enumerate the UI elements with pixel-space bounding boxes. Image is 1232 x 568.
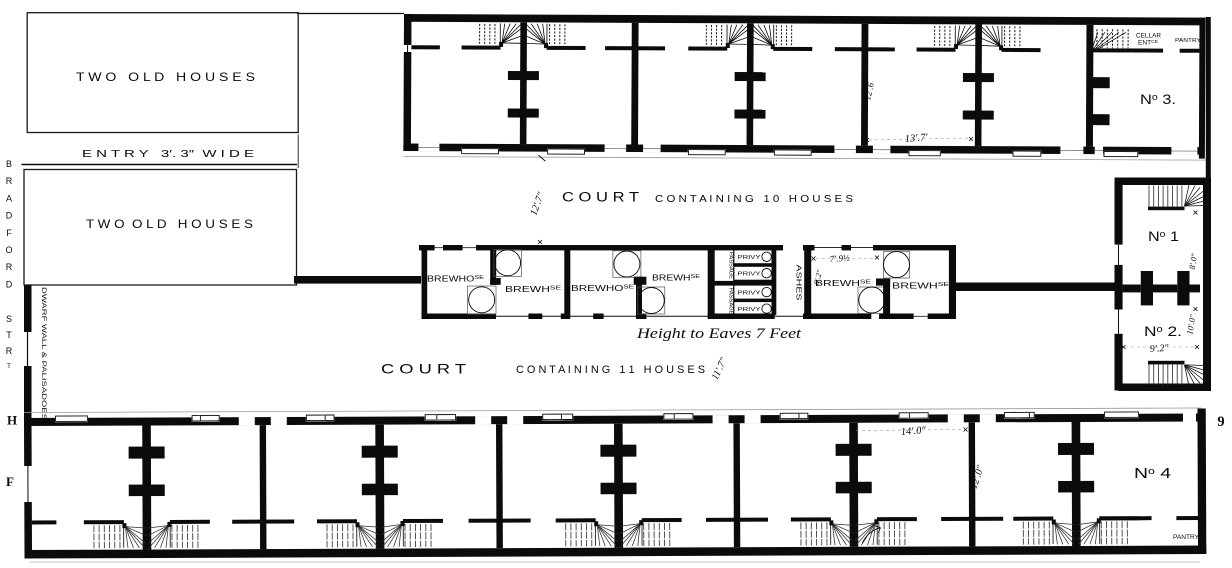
svg-text:PRIVY: PRIVY [738,291,761,297]
svg-text:PANTRY: PANTRY [1175,38,1201,44]
svg-text:T: T [7,363,11,370]
svg-text:13′.7′: 13′.7′ [904,132,928,145]
svg-text:9′.2″: 9′.2″ [1149,343,1169,355]
svg-text:R: R [6,346,13,356]
svg-text:D: D [6,279,13,289]
svg-text:PRIVY: PRIVY [738,272,761,278]
svg-text:S: S [6,314,12,324]
svg-text:No 3.: No 3. [1140,91,1176,107]
svg-text:R: R [6,176,13,186]
svg-text:E N T R Y 3′. 3″ W I D E: E N T R Y 3′. 3″ W I D E [82,148,254,160]
svg-text:ASHES: ASHES [795,265,804,301]
svg-text:T W O O L D H O U S E S: T W O O L D H O U S E S [86,217,253,231]
svg-text:PASSAGE: PASSAGE [728,288,734,315]
svg-text:C O U R T: C O U R T [381,361,467,377]
svg-text:PASSAGE: PASSAGE [728,252,734,279]
svg-text:Height to Eaves 7 Feet: Height to Eaves 7 Feet [636,326,802,342]
svg-text:9: 9 [1217,414,1224,430]
svg-text:14′.0″: 14′.0″ [900,425,926,438]
svg-text:T: T [6,330,12,340]
svg-text:PRIVY: PRIVY [738,307,761,313]
svg-text:F: F [6,474,14,489]
svg-text:R: R [6,262,13,272]
svg-text:H: H [7,413,17,428]
svg-text:C O N T A I N I N G 1 0 H: C O N T A I N I N G 1 0 H O U S E S [655,193,853,205]
svg-text:7′.9½: 7′.9½ [829,253,850,264]
svg-text:O: O [5,245,12,255]
svg-text:B: B [6,159,12,169]
svg-text:D: D [6,211,13,221]
svg-text:PANTRY: PANTRY [1173,535,1199,541]
svg-text:No 2.: No 2. [1144,323,1182,339]
svg-text:DWARF WALL & PALISADOES: DWARF WALL & PALISADOES [40,287,47,420]
svg-text:C O U R T: C O U R T [562,190,639,205]
svg-text:C O N T A I N I N G 1 1 H: C O N T A I N I N G 1 1 H O U S E S [516,364,705,376]
svg-text:PRIVY: PRIVY [738,255,761,261]
svg-text:T W O O L D H O U S E S: T W O O L D H O U S E S [76,70,255,84]
svg-text:F: F [6,228,12,238]
svg-text:A: A [6,193,12,203]
